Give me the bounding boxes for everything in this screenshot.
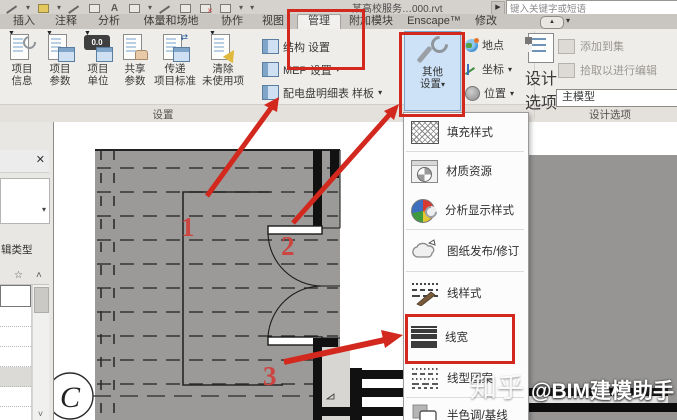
callout-3: 3 [263,361,277,392]
callout-1: 1 [181,212,195,243]
callout-2: 2 [281,231,295,262]
revit-window: ▾ ▾ A ▾ ✕ ▾ ▾ 某高校服务…000.rvt ▶ 插入 注释 分析 体… [0,0,677,420]
red-arrows [0,0,677,420]
